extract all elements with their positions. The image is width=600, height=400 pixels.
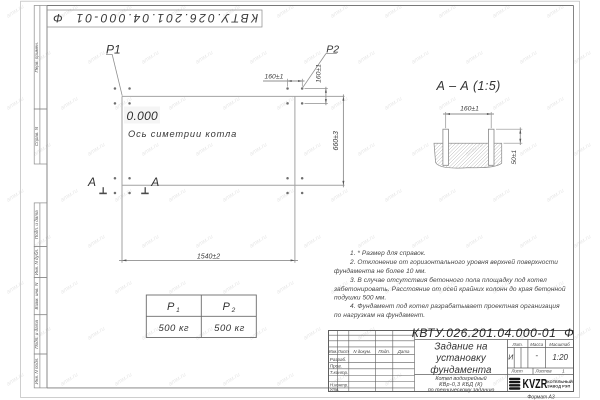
svg-text:Формат А3: Формат А3 [527,394,555,400]
svg-text:1540±2: 1540±2 [197,254,220,261]
svg-text:Ось симетрии котла: Ось симетрии котла [128,129,237,139]
svg-text:0.000: 0.000 [127,109,159,123]
svg-text:Т.контр.: Т.контр. [330,370,349,375]
svg-text:А: А [150,175,159,189]
svg-text:установку: установку [435,353,487,364]
svg-text:Утв.: Утв. [330,387,340,392]
svg-text:-: - [535,351,538,360]
svg-text:ЗАВОД РЭП: ЗАВОД РЭП [547,383,570,388]
svg-text:А: А [87,175,96,189]
svg-text:160±1: 160±1 [460,106,479,113]
svg-text:1: 1 [562,368,565,373]
svg-text:KVZR: KVZR [523,378,548,392]
svg-text:1:20: 1:20 [552,353,568,362]
svg-text:500 кг: 500 кг [214,323,245,334]
svg-text:Подп.: Подп. [378,349,390,354]
svg-text:2. Отклонение от горизонтально: 2. Отклонение от горизонтального уровня … [349,258,558,266]
svg-text:Листов: Листов [535,368,553,373]
svg-text:160±1: 160±1 [265,74,284,81]
svg-text:N докум.: N докум. [353,349,371,354]
svg-text:Инв. N дубл.: Инв. N дубл. [34,249,39,276]
svg-text:Подп. и дата: Подп. и дата [34,210,39,239]
svg-text:Изм.: Изм. [329,349,338,354]
svg-text:Лит.: Лит. [512,342,523,347]
svg-text:Дата: Дата [397,349,410,354]
svg-text:фундамента: фундамента [430,365,492,376]
svg-text:660±3: 660±3 [333,131,340,151]
svg-text:Инв. N подл.: Инв. N подл. [34,358,39,385]
svg-text:Масштаб: Масштаб [549,342,570,347]
svg-text:Пров.: Пров. [330,363,342,368]
svg-text:А – А (1:5): А – А (1:5) [436,79,501,93]
svg-text:3. В случае отсутствия бетонно: 3. В случае отсутствия бетонного пола пл… [350,276,547,284]
svg-text:фундамента не более 10 мм.: фундамента не более 10 мм. [334,267,426,275]
svg-text:Задание на: Задание на [434,342,488,353]
svg-text:Лист: Лист [337,349,349,354]
svg-text:Подп. и дата: Подп. и дата [34,320,39,349]
svg-text:50±1: 50±1 [511,150,518,165]
svg-text:забетонировать. Расстояние от: забетонировать. Расстояние от осей крайн… [333,285,566,293]
svg-text:Разраб.: Разраб. [330,357,347,362]
svg-text:4. Фундамент под котел разраба: 4. Фундамент под котел разрабатывает про… [350,302,560,310]
svg-text:Перв. примен.: Перв. примен. [34,42,39,73]
svg-text:по техническому заданию: по техническому заданию [428,387,495,393]
svg-text:160±1: 160±1 [316,64,323,83]
svg-text:1. * Размер для справок.: 1. * Размер для справок. [350,249,426,257]
svg-text:Масса: Масса [530,342,544,347]
svg-text:500 кг: 500 кг [158,323,189,334]
svg-text:Взам. инв. N: Взам. инв. N [34,282,39,309]
svg-text:Справ. N: Справ. N [34,126,39,146]
svg-text:Лист: Лист [510,368,523,373]
svg-text:по нагрузкам на фундамент.: по нагрузкам на фундамент. [334,311,425,319]
svg-text:подушки 500 мм.: подушки 500 мм. [334,294,386,302]
svg-text:КВТУ.026.201.04.000-01 Ф: КВТУ.026.201.04.000-01 Ф [51,11,258,25]
svg-text:КВТУ.026.201.04.000-01 Ф: КВТУ.026.201.04.000-01 Ф [412,326,574,340]
